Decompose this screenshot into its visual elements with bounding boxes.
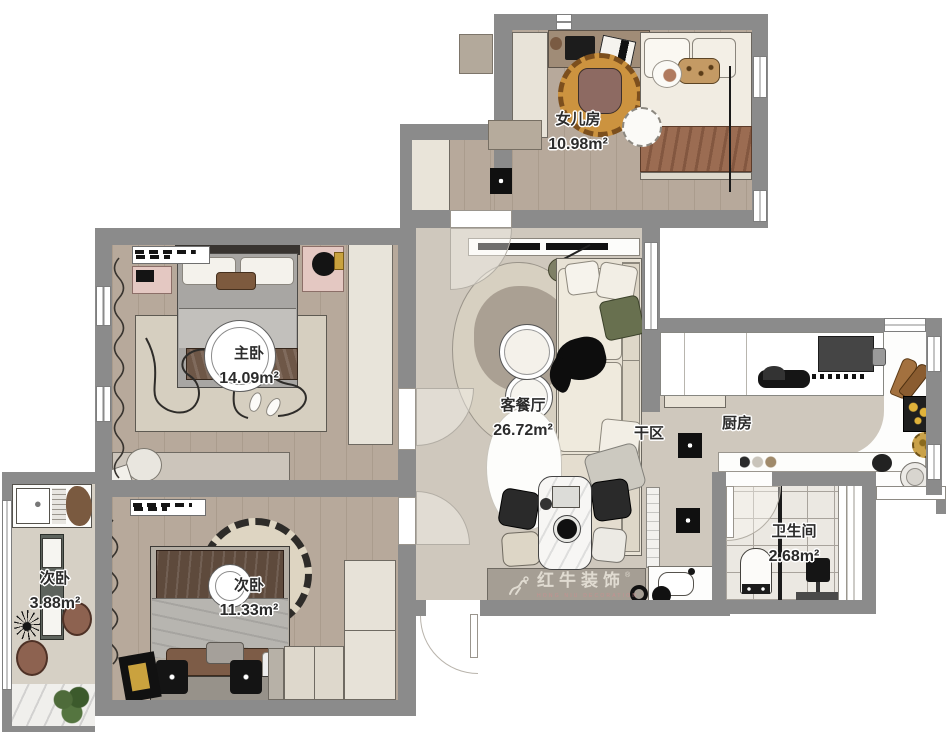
second-ac-unit — [130, 499, 206, 516]
floor-plan: 红牛装饰® HONG NIU DECORATION — [0, 0, 952, 732]
ceiling-light-dry-area — [678, 433, 702, 458]
tiled-pillar — [646, 487, 660, 568]
utensil-crumbs — [812, 374, 866, 379]
wall — [2, 726, 95, 732]
shower-base — [796, 592, 840, 600]
wall — [112, 228, 398, 245]
desk-accessory — [550, 37, 562, 50]
nightstand-basket — [334, 252, 344, 270]
wall — [712, 600, 876, 614]
dining-chair-black-left — [497, 487, 541, 531]
watermark-subtitle: HONG NIU DECORATION — [537, 593, 638, 599]
window-master-1 — [96, 286, 111, 326]
small-sink-basin — [16, 488, 50, 524]
balcony-plant — [50, 682, 94, 726]
wall — [398, 450, 416, 497]
wall — [772, 472, 876, 486]
sofa-pillow-green — [598, 294, 645, 341]
watermark-reg: ® — [625, 572, 630, 579]
wall — [398, 228, 416, 388]
wall — [712, 472, 726, 614]
master-wardrobe — [348, 240, 393, 445]
small-laundry-pile — [66, 486, 92, 526]
room-label-small: 次卧 3.88m² — [30, 569, 81, 615]
wall — [572, 14, 768, 30]
window-top-notch — [556, 14, 572, 30]
desk-chair — [578, 68, 622, 114]
room-label-daughter: 女儿房 10.98m² — [548, 110, 608, 156]
brand-logo-icon — [508, 575, 530, 597]
daughter-side-table — [622, 107, 662, 147]
window-daughter-1 — [753, 56, 767, 98]
exterior-unit — [459, 34, 493, 74]
window-kitchen-right-2 — [927, 444, 941, 480]
curtain-line — [729, 66, 731, 192]
nightstand-speaker — [312, 252, 336, 276]
second-wardrobe-low — [284, 646, 344, 700]
wall — [400, 210, 450, 228]
wall — [480, 600, 730, 616]
bath-door-leaf — [726, 486, 734, 538]
corridor-door-leaf — [450, 210, 512, 228]
small-chair-top — [42, 538, 62, 568]
wall — [512, 210, 768, 228]
entry-door-leaf — [470, 614, 478, 658]
wall — [400, 124, 494, 140]
wall — [2, 472, 95, 484]
ceiling-light-hallway — [676, 508, 700, 533]
toilet-base — [742, 584, 770, 594]
wall — [95, 480, 398, 497]
hotpot — [554, 516, 580, 542]
kitchen-sink-black — [818, 336, 874, 372]
flower-cushion — [652, 60, 682, 88]
wall — [95, 497, 112, 716]
small-bowls — [740, 456, 784, 468]
second-wardrobe-tall — [344, 560, 396, 700]
small-washer — [52, 488, 66, 524]
kitchen-faucet — [872, 348, 886, 366]
window-living-right — [644, 242, 658, 330]
watermark-brand: 红牛装饰 — [537, 571, 625, 590]
window-daughter-2 — [753, 190, 767, 222]
room-label-bath: 卫生间 2.68m² — [769, 522, 820, 568]
daughter-bed-footboard — [640, 172, 752, 180]
room-label-living: 客餐厅 26.72m² — [493, 396, 553, 442]
second-pillow-black-right — [230, 660, 262, 694]
bath-window-shaft — [838, 486, 862, 600]
leopard-pillow — [678, 58, 720, 84]
exterior-wall-stub — [936, 500, 946, 514]
kitchen-bowl — [763, 366, 785, 380]
nightstand-clock — [136, 270, 154, 282]
corridor-cabinet — [488, 120, 542, 150]
black-bowl-small — [872, 454, 892, 472]
dining-chair-beige — [501, 531, 541, 568]
room-label-kitchen: 厨房 — [722, 414, 752, 434]
room-label-second: 次卧 11.33m² — [220, 576, 279, 622]
second-pillow-black-left — [156, 660, 188, 694]
second-door-leaf — [398, 497, 416, 545]
master-ac-unit — [132, 246, 210, 264]
window-kitchen-right-1 — [927, 336, 941, 372]
console-soundbar-right — [546, 243, 608, 250]
dining-bowl — [540, 498, 552, 510]
ceiling-light-corridor — [490, 168, 512, 194]
basin-faucet-dot — [688, 568, 695, 575]
small-chair-left — [16, 640, 48, 676]
wall — [398, 545, 416, 716]
dining-chair-black-right — [589, 478, 632, 523]
window-kitchen-top — [884, 318, 926, 332]
wall — [660, 318, 884, 332]
bed-tray — [216, 272, 256, 290]
wall — [416, 600, 426, 616]
window-master-2 — [96, 386, 111, 422]
wall — [95, 700, 416, 716]
window-small-room — [2, 500, 12, 690]
wall — [95, 228, 112, 497]
dining-tray — [552, 486, 580, 508]
master-door-leaf — [398, 388, 416, 450]
coffee-table-large — [499, 324, 555, 380]
room-label-master: 主卧 14.09m² — [219, 344, 279, 390]
dining-chair-white — [590, 526, 627, 563]
wall — [862, 472, 876, 614]
room-label-dry-area: 干区 — [634, 424, 664, 444]
watermark: 红牛装饰® HONG NIU DECORATION — [508, 572, 638, 599]
second-cabinet-gray — [268, 648, 284, 700]
